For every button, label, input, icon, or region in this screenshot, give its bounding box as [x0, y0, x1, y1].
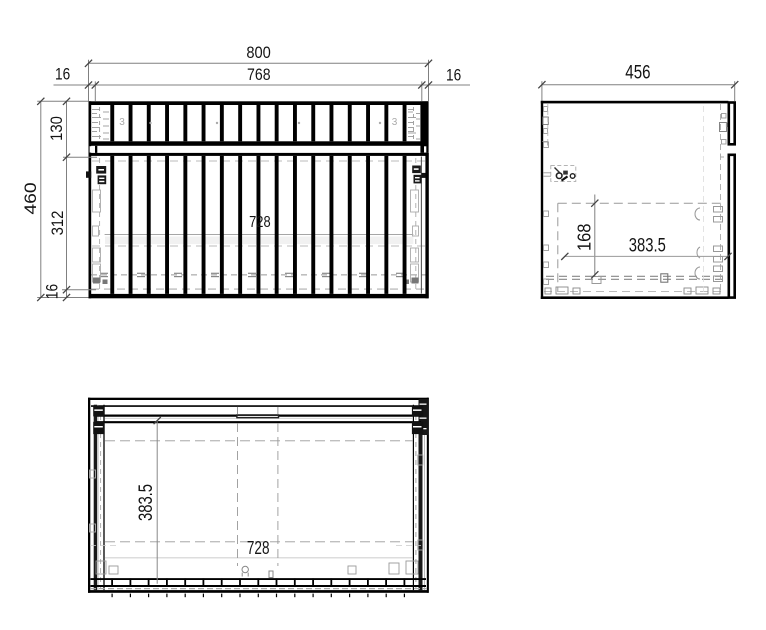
- svg-text:456: 456: [625, 63, 650, 84]
- svg-text:768: 768: [247, 65, 271, 84]
- svg-text:130: 130: [47, 116, 66, 141]
- svg-text:460: 460: [21, 182, 40, 214]
- svg-text:728: 728: [247, 538, 270, 558]
- svg-text:16: 16: [43, 284, 62, 299]
- svg-text:16: 16: [55, 65, 70, 84]
- svg-text:312: 312: [48, 211, 67, 236]
- svg-text:383.5: 383.5: [629, 236, 666, 257]
- svg-text:3: 3: [392, 117, 398, 128]
- svg-text:3: 3: [119, 117, 125, 128]
- svg-text:168: 168: [575, 224, 595, 252]
- svg-text:16: 16: [446, 66, 461, 85]
- svg-text:728: 728: [249, 214, 271, 231]
- svg-text:383.5: 383.5: [136, 484, 157, 521]
- svg-text:800: 800: [246, 43, 271, 62]
